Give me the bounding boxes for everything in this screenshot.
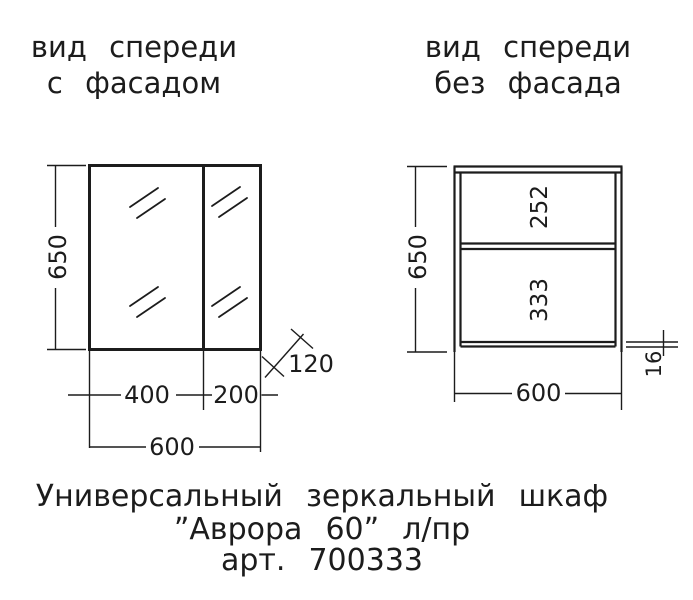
cabinet-outline: [90, 166, 261, 350]
glare-stroke: [219, 298, 247, 317]
height-label: 650: [44, 234, 72, 280]
height-label: 650: [404, 234, 432, 280]
depth-dimension: 120: [262, 329, 334, 378]
total-width-label: 600: [149, 433, 195, 461]
product-name: Универсальный зеркальный шкаф: [36, 479, 608, 514]
drawing-canvas: вид спереди с фасадом вид спереди без фа…: [0, 0, 693, 600]
right-door-width-label: 200: [213, 381, 259, 409]
x-tick-icon: [291, 329, 313, 349]
glare-stroke: [137, 199, 165, 218]
height-dimension: 650: [404, 167, 447, 353]
right-view-title-line2: без фасада: [434, 66, 622, 100]
technical-drawing-page: вид спереди с фасадом вид спереди без фа…: [0, 0, 693, 600]
glare-stroke: [219, 198, 247, 217]
glare-stroke: [130, 188, 158, 207]
width-label: 600: [516, 379, 562, 407]
height-dimension: 650: [44, 166, 86, 350]
front-view-without-facade: 252 333 650 16 600: [404, 167, 678, 411]
glare-stroke: [130, 287, 158, 306]
product-caption: Универсальный зеркальный шкаф ”Аврора 60…: [36, 479, 608, 578]
glare-stroke: [212, 187, 240, 206]
width-dimension: 600: [455, 352, 622, 410]
product-model: ”Аврора 60” л/пр: [174, 512, 470, 547]
mirror-glare-icon: [130, 287, 165, 317]
mirror-glare-icon: [212, 287, 247, 317]
glare-stroke: [212, 287, 240, 306]
panel-thickness-dimension: 16: [626, 330, 678, 377]
panel-thickness-label: 16: [642, 351, 666, 378]
left-view-title-line2: с фасадом: [47, 66, 221, 100]
left-view-title-line1: вид спереди: [31, 30, 237, 64]
left-door-width-label: 400: [124, 381, 170, 409]
mirror-glare-icon: [212, 187, 247, 217]
depth-label: 120: [288, 350, 334, 378]
mirror-glare-icon: [130, 188, 165, 218]
lower-compartment-height-label: 333: [527, 278, 553, 322]
product-article-number: арт. 700333: [221, 543, 423, 578]
glare-stroke: [137, 298, 165, 317]
front-view-with-facade: 650 400 200 600 120: [44, 166, 334, 462]
width-dimensions: 400 200 600: [68, 350, 278, 462]
right-view-title-line1: вид спереди: [425, 30, 631, 64]
upper-compartment-height-label: 252: [527, 185, 553, 229]
